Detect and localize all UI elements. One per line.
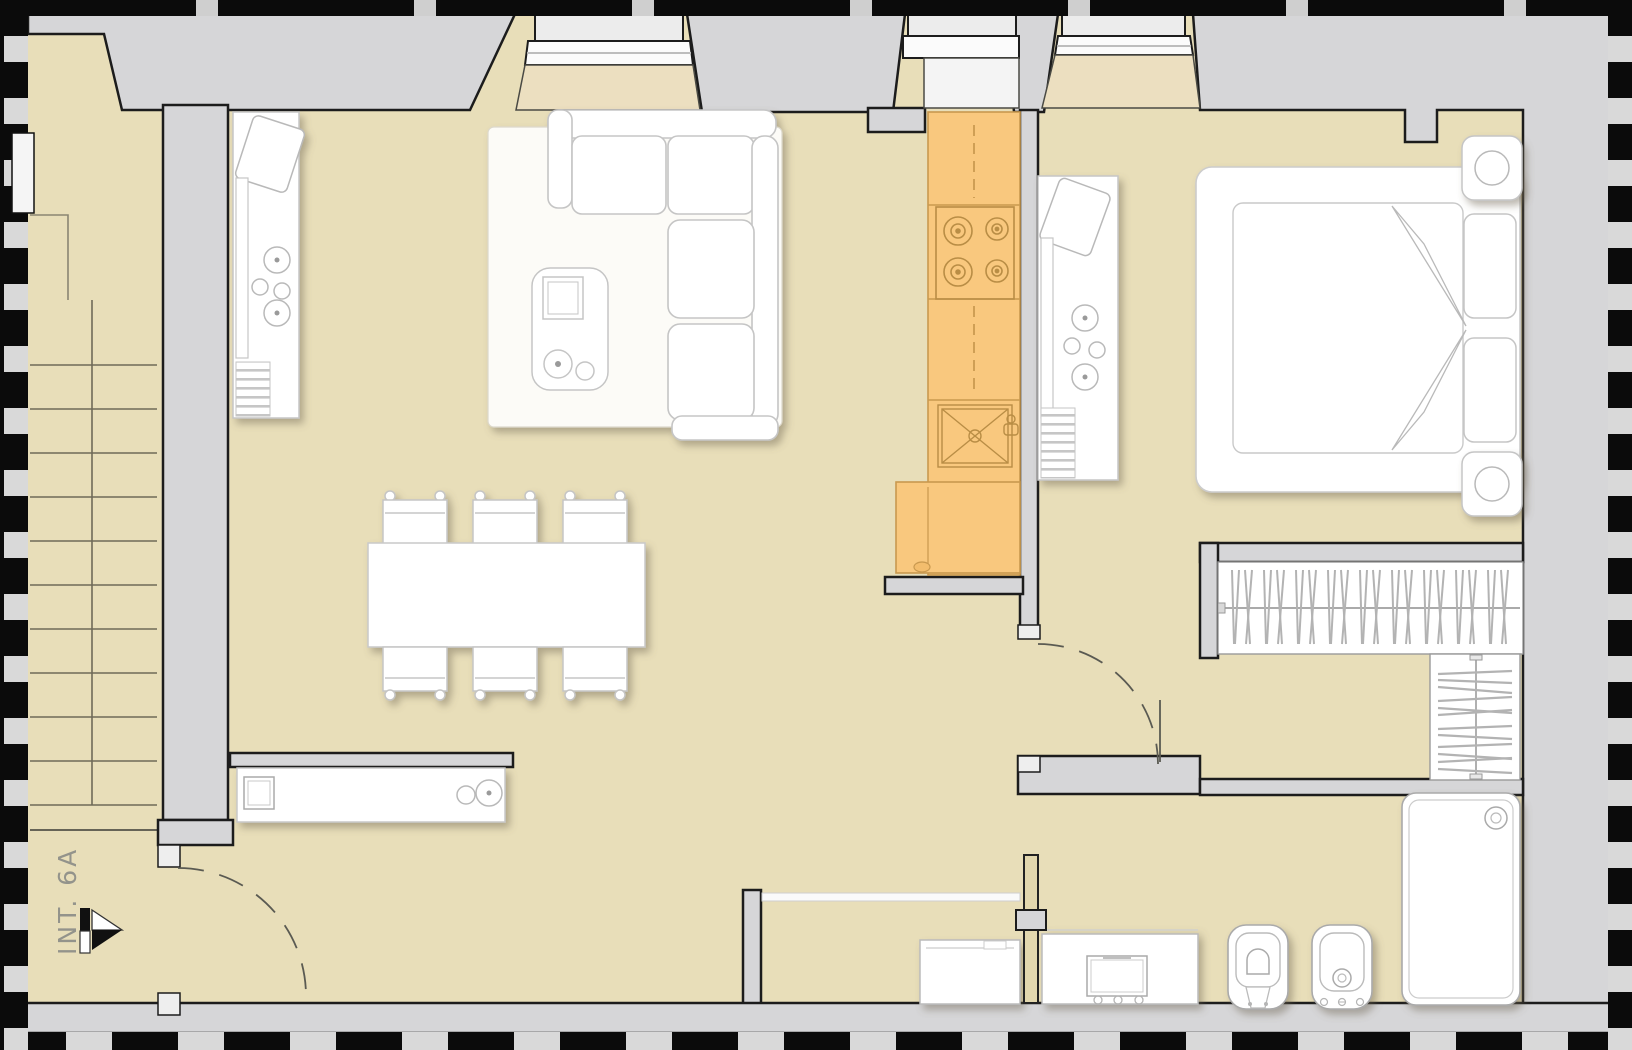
- stair-window: [12, 133, 34, 213]
- laundry-shelf: [762, 893, 1020, 901]
- kitchen-door-jamb: [1018, 625, 1040, 639]
- dining-chair: [473, 500, 537, 544]
- sofa-area: [488, 110, 782, 440]
- bedroom-desk: [1038, 176, 1118, 480]
- desk-shelf-hatch: [236, 362, 270, 416]
- pillow: [1464, 338, 1516, 442]
- dining-chair: [383, 500, 447, 544]
- wardrobe-wall-stub: [1200, 543, 1218, 658]
- kitchen-right-wall: [1020, 110, 1038, 632]
- dining-chair: [473, 647, 537, 691]
- bed: [1196, 167, 1520, 492]
- vanity: [1042, 930, 1198, 1004]
- nightstand-bottom: [1462, 452, 1522, 516]
- floor-plan-page: INT. 6A: [0, 0, 1632, 1050]
- bidet: [1312, 925, 1372, 1009]
- door-frame-block: [1016, 910, 1046, 930]
- door-jamb: [158, 993, 180, 1015]
- top-wall-middle: [687, 14, 905, 112]
- wardrobe-hanging: [1218, 562, 1523, 654]
- dining-chair: [563, 500, 627, 544]
- wardrobe-wall-top: [1200, 543, 1523, 562]
- bedroom-window: [1042, 14, 1200, 108]
- niche-wall: [743, 890, 761, 1008]
- refrigerator: [896, 482, 1020, 573]
- dining-chair: [563, 647, 627, 691]
- lamp: [1475, 467, 1509, 501]
- boundary-right: [1608, 0, 1632, 1050]
- lamp: [1475, 151, 1509, 185]
- wardrobe-shelves: [1430, 654, 1520, 780]
- living-bottom-wall: [230, 753, 513, 767]
- boundary-bottom: [0, 1032, 1632, 1050]
- nightstand-top: [1462, 136, 1522, 200]
- dining-chair: [383, 647, 447, 691]
- shower-tray: [1402, 793, 1520, 1005]
- floor-plan-svg: INT. 6A: [0, 0, 1632, 1050]
- living-room-window: [516, 14, 700, 110]
- left-wall-cap: [158, 820, 233, 845]
- bottom-wall: [14, 1003, 1618, 1033]
- kitchen-bottom-wall: [885, 577, 1023, 594]
- bed-duvet: [1233, 203, 1463, 453]
- dining-set: [368, 491, 645, 700]
- door-jamb: [158, 845, 180, 867]
- coffee-table: [532, 268, 608, 390]
- left-wall: [163, 105, 228, 820]
- living-desk: [233, 112, 306, 418]
- unit-label: INT. 6A: [53, 847, 82, 955]
- dining-table: [368, 543, 645, 647]
- door-jamb: [1018, 756, 1040, 772]
- kitchen-window-stub: [868, 108, 925, 132]
- boundary-top: [0, 0, 1632, 16]
- toilet: [1228, 925, 1288, 1009]
- sideboard: [237, 768, 505, 822]
- washing-machine: [920, 940, 1020, 1004]
- bedroom-hall-wall: [1018, 756, 1200, 794]
- pillow: [1464, 214, 1516, 318]
- desk-shelf-hatch: [1041, 408, 1075, 478]
